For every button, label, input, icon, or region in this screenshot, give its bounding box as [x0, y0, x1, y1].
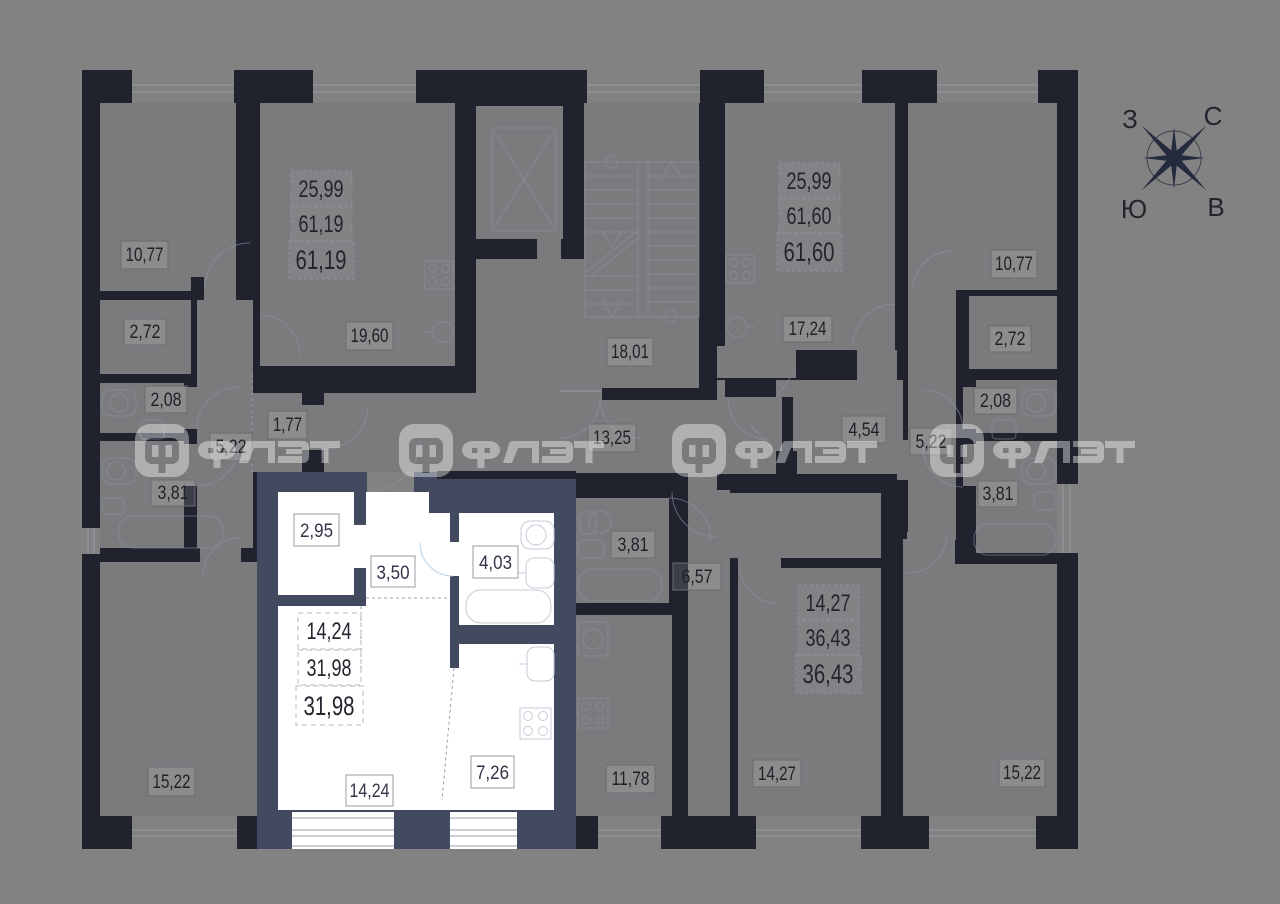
svg-text:2,72: 2,72	[995, 329, 1026, 350]
svg-text:15,22: 15,22	[1003, 763, 1041, 784]
svg-text:17,24: 17,24	[789, 319, 827, 340]
svg-text:31,98: 31,98	[304, 691, 355, 721]
svg-text:36,43: 36,43	[806, 625, 851, 652]
svg-text:2,08: 2,08	[151, 390, 182, 411]
svg-text:1,77: 1,77	[273, 415, 302, 436]
svg-text:4,54: 4,54	[849, 420, 880, 441]
svg-text:61,60: 61,60	[787, 203, 832, 230]
svg-text:В: В	[1207, 192, 1224, 222]
svg-text:10,77: 10,77	[126, 245, 164, 266]
svg-text:61,60: 61,60	[784, 237, 835, 267]
svg-text:14,27: 14,27	[758, 764, 796, 785]
svg-text:15,22: 15,22	[153, 772, 191, 793]
svg-text:7,26: 7,26	[476, 763, 509, 784]
svg-text:3,81: 3,81	[618, 535, 649, 556]
svg-text:3,50: 3,50	[377, 563, 410, 584]
svg-text:61,19: 61,19	[299, 211, 344, 238]
svg-text:3,81: 3,81	[158, 483, 189, 504]
svg-text:4,03: 4,03	[479, 553, 512, 574]
svg-text:2,95: 2,95	[300, 521, 333, 542]
svg-text:З: З	[1122, 104, 1138, 134]
svg-text:25,99: 25,99	[787, 168, 832, 195]
svg-text:2,72: 2,72	[130, 322, 161, 343]
svg-text:6,57: 6,57	[682, 567, 713, 588]
svg-text:25,99: 25,99	[299, 176, 344, 203]
svg-text:3,81: 3,81	[983, 484, 1014, 505]
svg-text:61,19: 61,19	[296, 245, 347, 275]
svg-text:14,24: 14,24	[307, 618, 352, 645]
svg-text:14,27: 14,27	[806, 590, 851, 617]
svg-text:19,60: 19,60	[351, 326, 389, 347]
svg-text:31,98: 31,98	[307, 655, 352, 682]
svg-text:36,43: 36,43	[803, 659, 854, 689]
svg-text:2,08: 2,08	[980, 391, 1011, 412]
svg-text:С: С	[1204, 101, 1223, 131]
svg-text:Ю: Ю	[1121, 194, 1147, 224]
svg-text:11,78: 11,78	[612, 769, 650, 790]
svg-text:14,24: 14,24	[350, 781, 390, 802]
svg-text:18,01: 18,01	[611, 342, 649, 363]
svg-text:10,77: 10,77	[995, 254, 1033, 275]
